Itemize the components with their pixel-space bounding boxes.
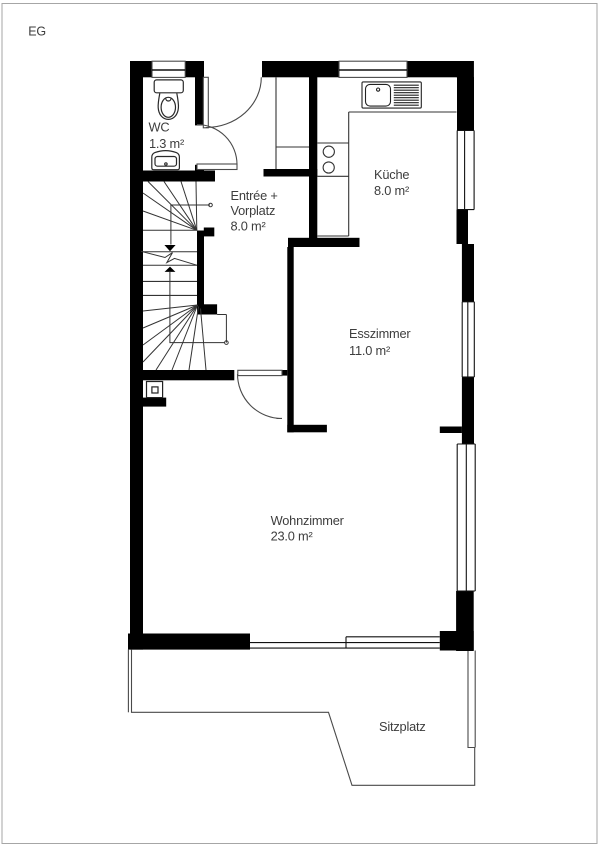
svg-text:Sitzplatz: Sitzplatz xyxy=(379,719,426,734)
svg-text:Küche: Küche xyxy=(374,167,409,182)
svg-text:EG: EG xyxy=(28,25,46,39)
svg-text:Vorplatz: Vorplatz xyxy=(231,203,276,218)
svg-text:WC: WC xyxy=(149,120,170,135)
svg-text:8.0 m²: 8.0 m² xyxy=(231,219,267,234)
svg-text:Entrée +: Entrée + xyxy=(231,188,278,203)
svg-text:Esszimmer: Esszimmer xyxy=(349,326,411,341)
svg-text:Wohnzimmer: Wohnzimmer xyxy=(271,513,345,528)
svg-text:11.0 m²: 11.0 m² xyxy=(349,343,391,358)
svg-text:23.0 m²: 23.0 m² xyxy=(271,529,314,544)
svg-text:1.3 m²: 1.3 m² xyxy=(149,136,185,151)
svg-text:8.0 m²: 8.0 m² xyxy=(374,183,410,198)
